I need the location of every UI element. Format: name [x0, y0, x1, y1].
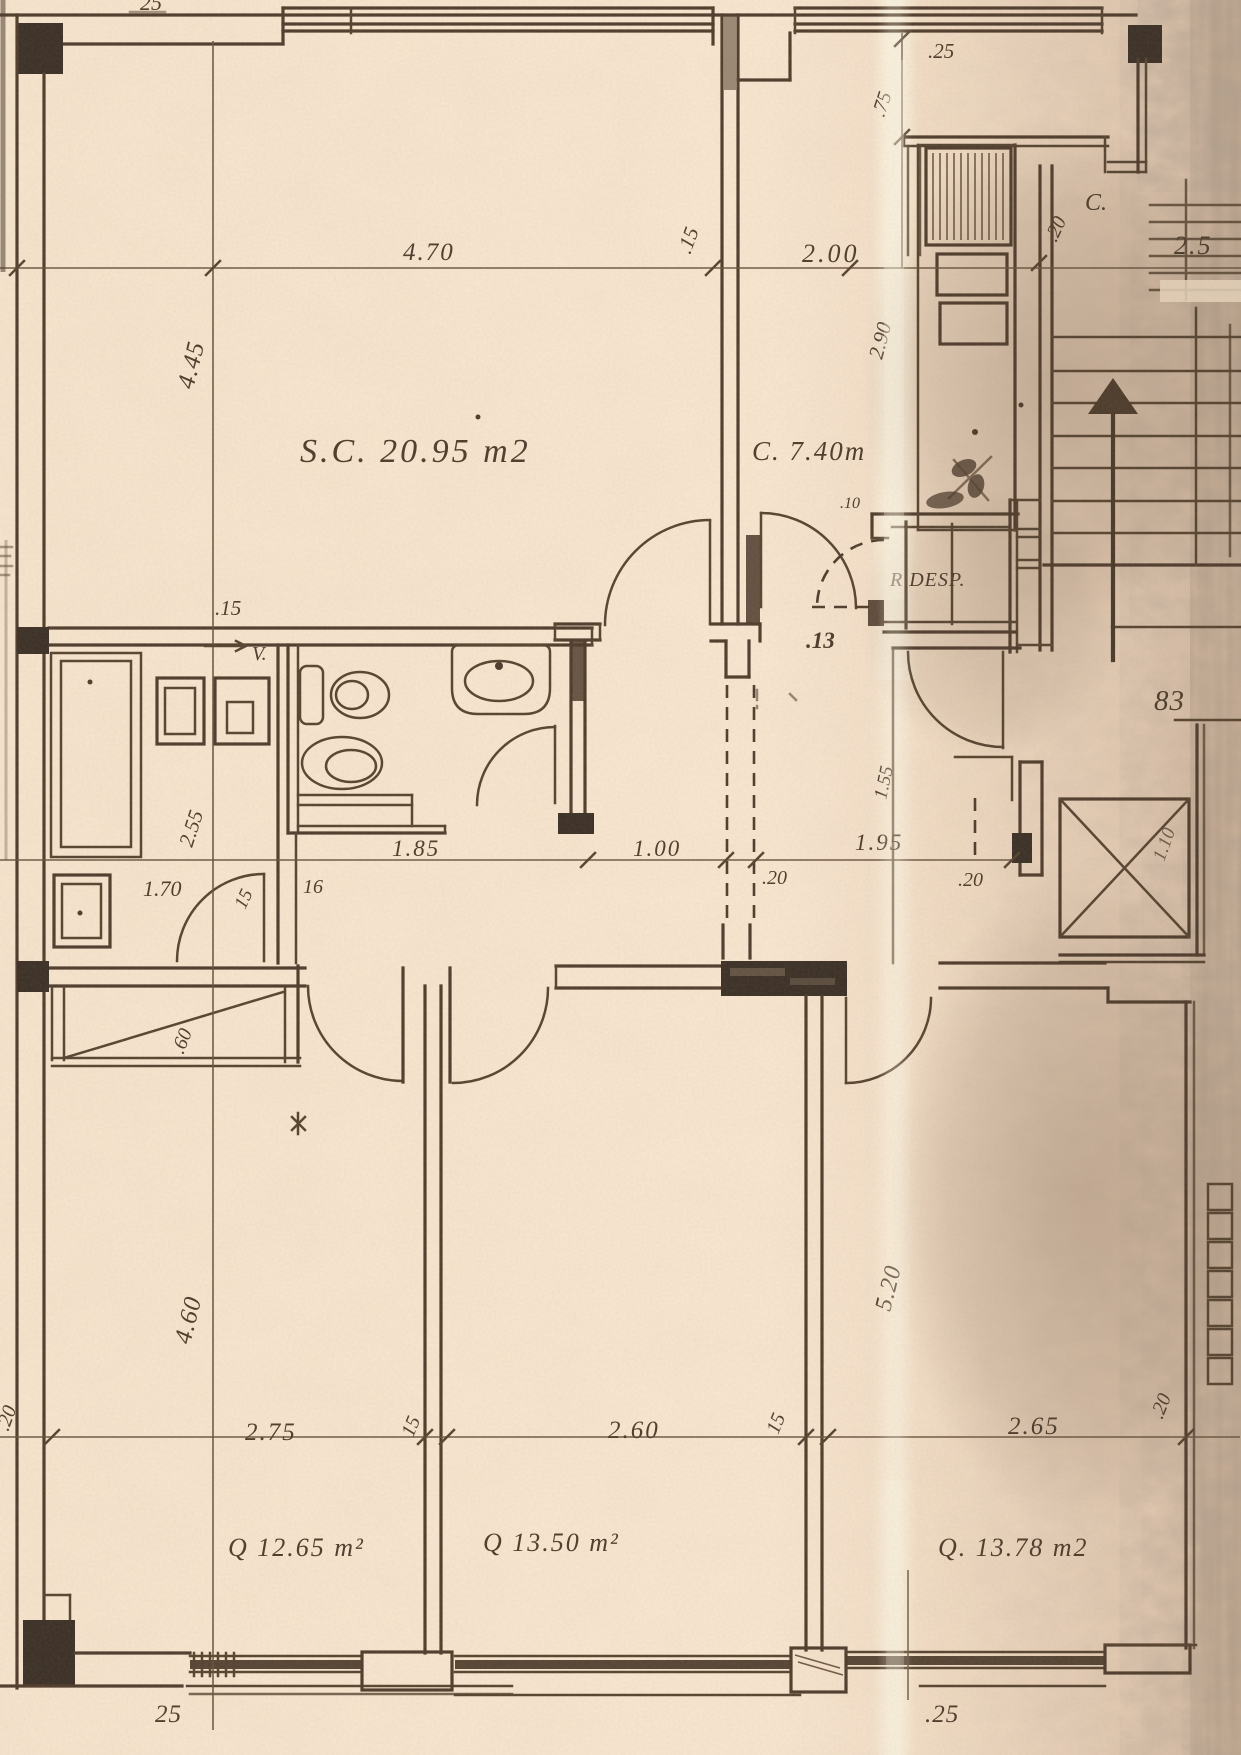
svg-text:16: 16	[303, 876, 323, 898]
svg-text:Q 12.65 m²: Q 12.65 m²	[228, 1533, 365, 1562]
svg-text:1.00: 1.00	[633, 836, 681, 861]
svg-text:25: 25	[155, 1701, 182, 1728]
svg-text:V.: V.	[252, 643, 267, 665]
svg-text:1.85: 1.85	[392, 836, 440, 861]
svg-text:1.70: 1.70	[143, 876, 182, 901]
svg-text:2.75: 2.75	[245, 1419, 297, 1446]
svg-text:.20: .20	[762, 867, 787, 889]
svg-text:.15: .15	[215, 596, 241, 620]
svg-text:2.00: 2.00	[802, 239, 860, 268]
svg-text:2.5: 2.5	[1174, 231, 1213, 260]
svg-text:.13: .13	[806, 628, 835, 653]
svg-text:Q 13.50 m²: Q 13.50 m²	[483, 1528, 620, 1557]
svg-text:.25: .25	[925, 1701, 959, 1728]
svg-text:C.: C.	[1085, 190, 1107, 216]
svg-text:.20: .20	[958, 869, 983, 891]
svg-text:.25: .25	[928, 39, 954, 63]
svg-text:4.70: 4.70	[403, 239, 455, 266]
svg-text:C. 7.40m: C. 7.40m	[752, 436, 866, 466]
svg-text:.10: .10	[840, 495, 860, 512]
svg-text:2.65: 2.65	[1008, 1413, 1060, 1440]
svg-text:S.C. 20.95 m2: S.C. 20.95 m2	[300, 433, 531, 470]
svg-text:2.60: 2.60	[608, 1417, 660, 1444]
svg-text:83: 83	[1154, 685, 1185, 717]
svg-text:Q. 13.78 m2: Q. 13.78 m2	[938, 1533, 1089, 1562]
